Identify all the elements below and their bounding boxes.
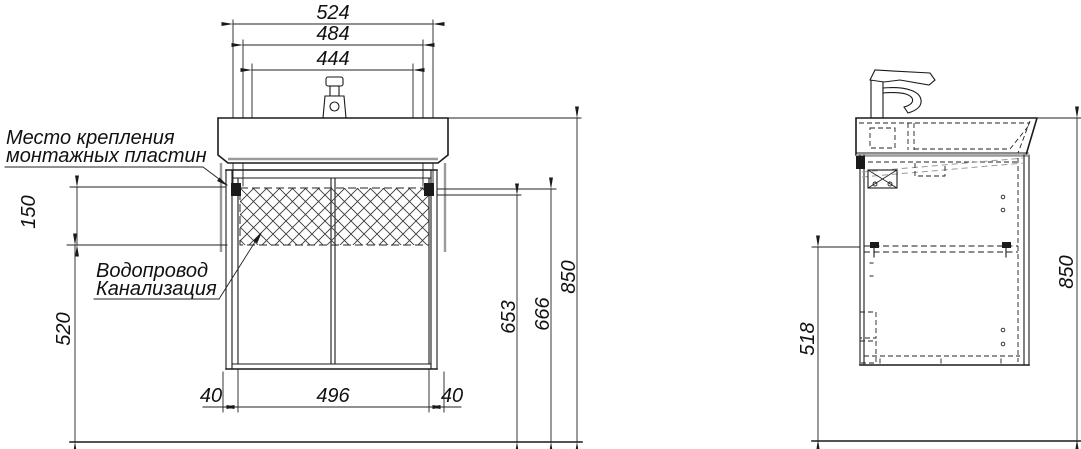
dim-653: 653 [498,300,520,333]
sink-front [218,118,448,163]
mounting-plates-callout: Место крепления монтажных пластин [5,127,228,186]
dim-850-front: 850 [558,260,580,293]
shelf-pin-holes [870,195,1005,363]
dim-666: 666 [532,296,554,330]
dim-520: 520 [53,312,75,345]
fitting-detail-upper [860,312,876,338]
vanity-technical-drawing: 524 484 444 [0,0,1081,449]
wall-bracket [856,156,865,169]
dim-484: 484 [316,23,349,45]
dim-524: 524 [316,2,349,24]
siphon-detail [868,163,945,188]
side-view: 518 850 [797,70,1081,441]
extension-lines-left [67,187,227,245]
mounting-plate-left [231,183,241,196]
sink-side [856,118,1037,156]
dim-40-left: 40 [200,385,222,407]
dim-496: 496 [316,385,350,407]
faucet-side [870,70,935,118]
technical-drawing-page: 524 484 444 [0,0,1081,449]
dim-40-right: 40 [441,385,463,407]
hatch-zone [240,188,429,245]
label-plumbing-line2: Канализация [96,278,217,300]
extension-lines-right [437,118,581,195]
dim-518: 518 [797,322,819,355]
plumbing-callout: Водопровод Канализация [94,232,262,300]
label-mounting-line2: монтажных пластин [6,145,207,167]
fitting-detail-lower [860,341,876,363]
front-view: 524 484 444 [5,2,582,442]
cabinet-side [856,155,1029,365]
dim-150: 150 [18,195,40,228]
dim-850-side: 850 [1056,255,1078,288]
shelf-detail [864,242,1018,257]
mounting-plate-right [424,183,434,196]
faucet-front [323,77,346,118]
dim-444: 444 [316,48,349,70]
